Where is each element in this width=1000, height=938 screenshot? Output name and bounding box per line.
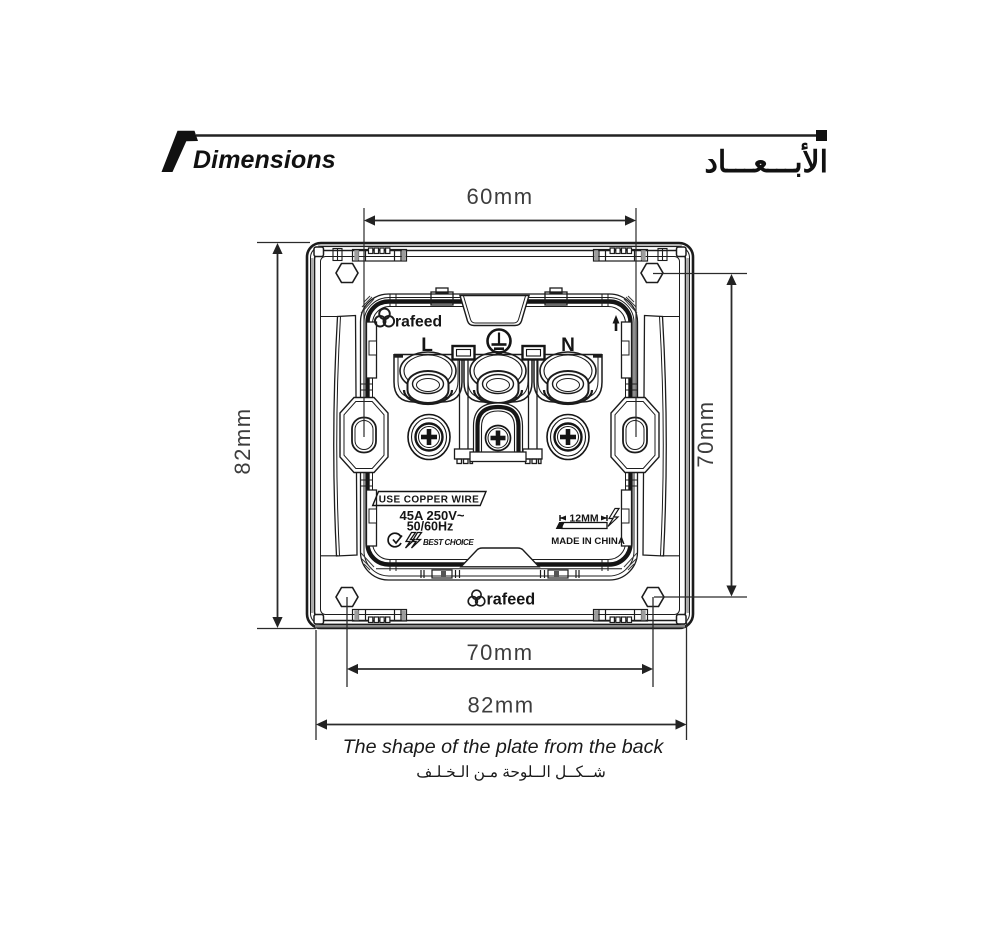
svg-text:USE COPPER WIRE: USE COPPER WIRE: [379, 495, 479, 506]
svg-text:MADE IN CHINA: MADE IN CHINA: [551, 536, 625, 547]
svg-text:Dimensions: Dimensions: [193, 146, 336, 174]
svg-text:82mm: 82mm: [467, 693, 534, 718]
svg-text:70mm: 70mm: [466, 640, 533, 665]
svg-text:The shape of the plate from th: The shape of the plate from the back: [343, 736, 665, 758]
svg-text:50/60Hz: 50/60Hz: [407, 520, 454, 534]
svg-text:rafeed: rafeed: [487, 591, 536, 609]
svg-text:شــكــل الــلوحة مـن الـخـلـف: شــكــل الــلوحة مـن الـخـلـف: [416, 764, 605, 781]
svg-text:82mm: 82mm: [230, 407, 255, 474]
svg-text:70mm: 70mm: [693, 400, 718, 467]
svg-text:BEST CHOICE: BEST CHOICE: [423, 538, 474, 547]
svg-text:rafeed: rafeed: [395, 314, 442, 331]
svg-text:60mm: 60mm: [466, 184, 533, 209]
svg-text:الأبـــعـــاد: الأبـــعـــاد: [704, 143, 828, 179]
